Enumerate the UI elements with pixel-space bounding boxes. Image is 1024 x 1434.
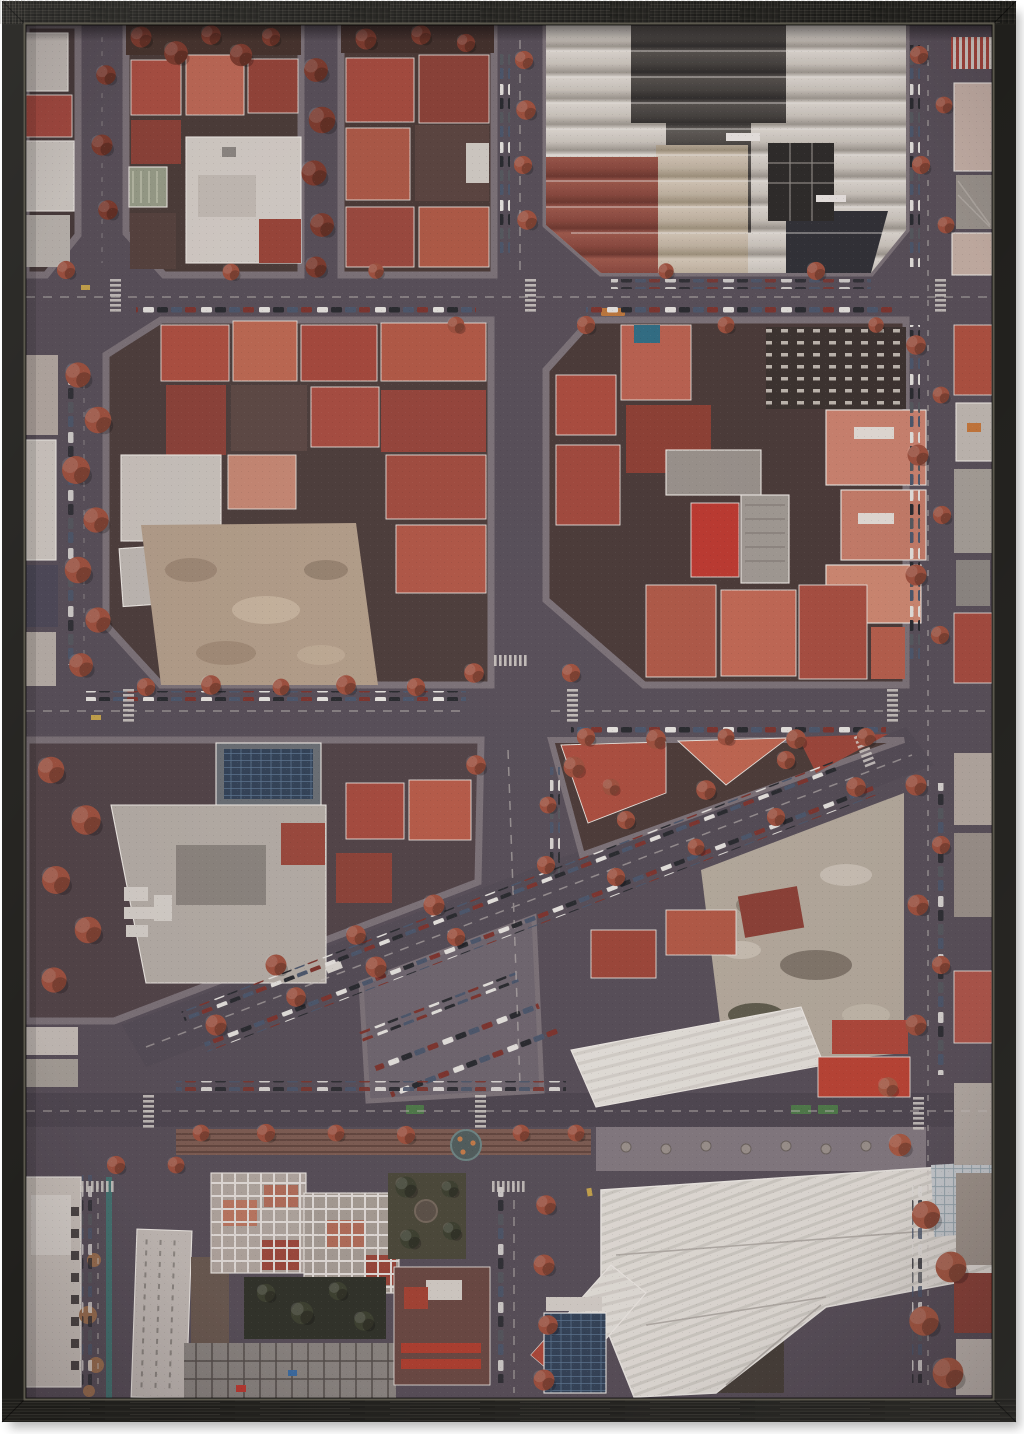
photo-vignette — [26, 25, 992, 1398]
photo-print — [26, 25, 1008, 1399]
framed-aerial-city-poster — [0, 0, 1024, 1434]
frame-cast-shadow-left — [26, 25, 36, 1398]
frame-cast-shadow-top — [26, 25, 992, 41]
page-background — [0, 0, 1024, 1434]
